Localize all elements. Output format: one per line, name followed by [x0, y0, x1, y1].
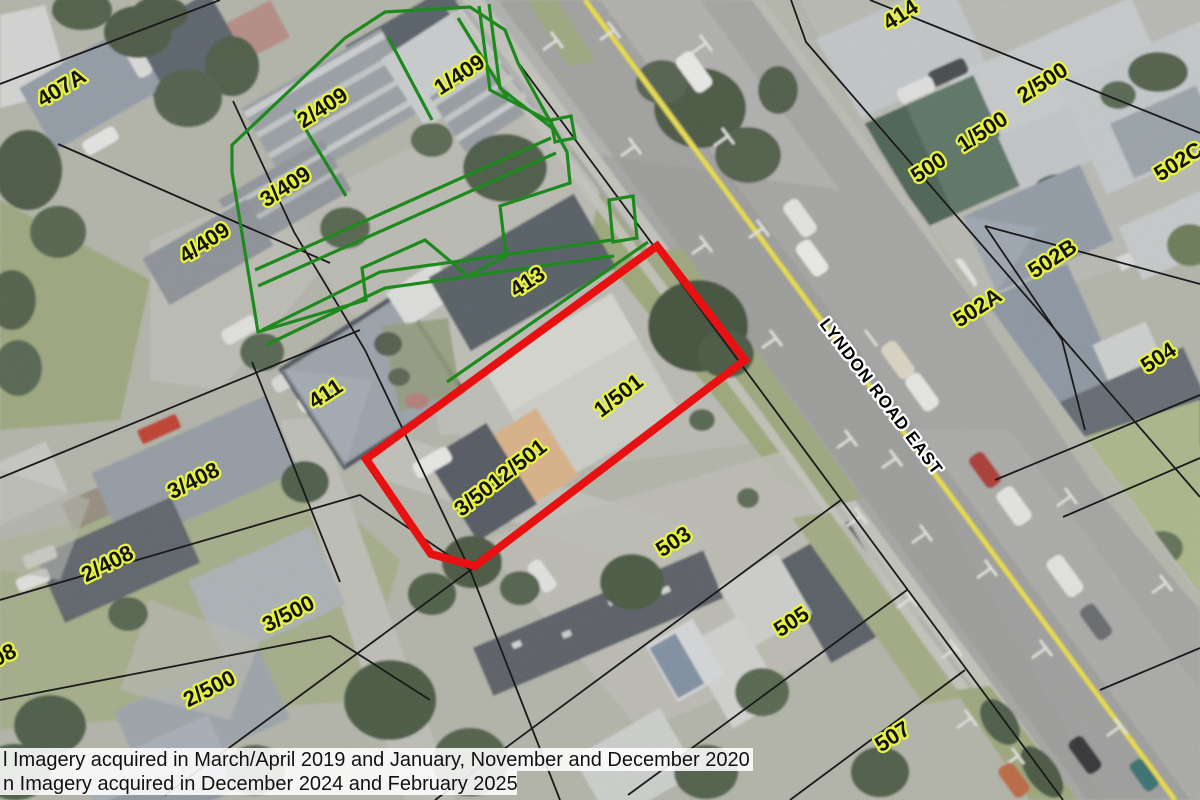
svg-text:n Imagery acquired in December: n Imagery acquired in December 2024 and … [3, 773, 518, 795]
svg-text:l Imagery acquired in March/Ap: l Imagery acquired in March/April 2019 a… [3, 749, 750, 771]
